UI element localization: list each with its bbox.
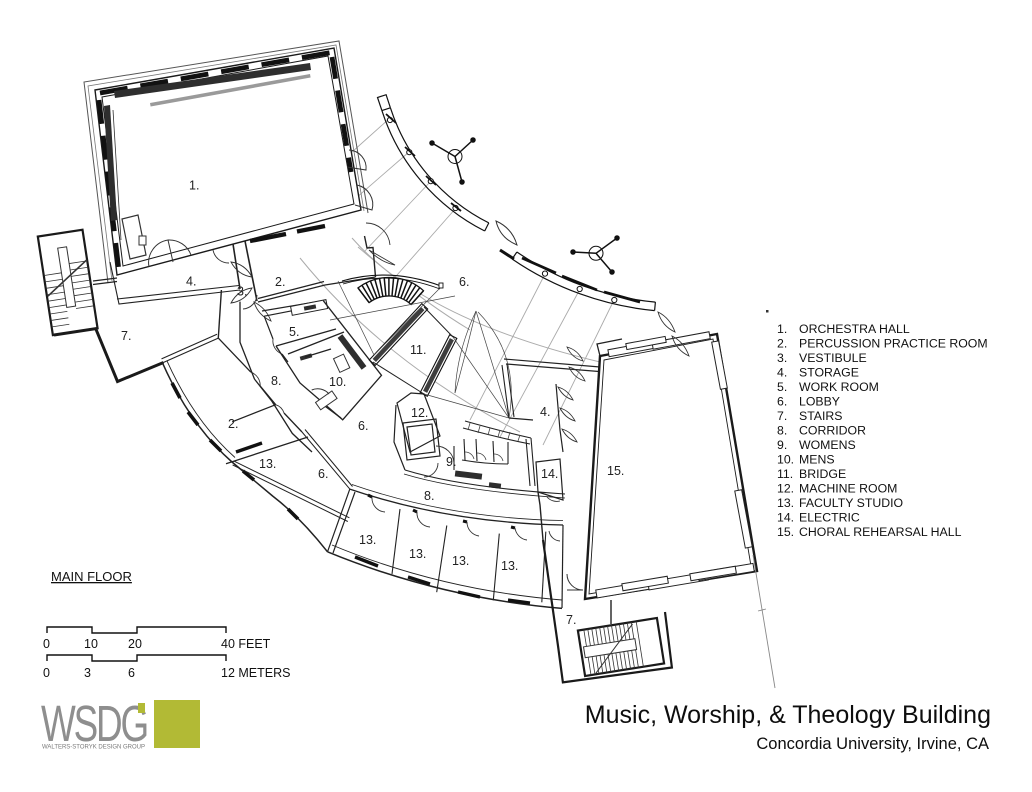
svg-text:6: 6 <box>128 666 135 680</box>
svg-text:ORCHESTRA HALL: ORCHESTRA HALL <box>799 322 910 336</box>
svg-text:13.: 13. <box>452 554 469 568</box>
svg-text:BRIDGE: BRIDGE <box>799 467 846 481</box>
svg-text:MENS: MENS <box>799 453 835 467</box>
svg-text:7.: 7. <box>777 409 787 423</box>
svg-text:1.: 1. <box>777 322 787 336</box>
svg-text:10.: 10. <box>329 375 346 389</box>
svg-text:WORK ROOM: WORK ROOM <box>799 380 879 394</box>
svg-text:4.: 4. <box>540 405 550 419</box>
svg-text:2.: 2. <box>275 275 285 289</box>
svg-text:9.: 9. <box>777 438 787 452</box>
svg-text:0: 0 <box>43 637 50 651</box>
svg-text:WOMENS: WOMENS <box>799 438 856 452</box>
svg-text:9.: 9. <box>446 455 456 469</box>
svg-text:14.: 14. <box>541 467 558 481</box>
svg-text:1.: 1. <box>189 179 199 193</box>
svg-text:2.: 2. <box>228 417 238 431</box>
svg-text:7.: 7. <box>121 329 131 343</box>
svg-text:CHORAL REHEARSAL HALL: CHORAL REHEARSAL HALL <box>799 525 962 539</box>
svg-text:3.: 3. <box>777 351 787 365</box>
svg-text:13.: 13. <box>777 496 794 510</box>
svg-text:MACHINE ROOM: MACHINE ROOM <box>799 482 897 496</box>
svg-text:4.: 4. <box>186 275 196 289</box>
svg-text:15.: 15. <box>607 464 624 478</box>
svg-text:8.: 8. <box>777 424 787 438</box>
svg-text:11.: 11. <box>777 467 793 481</box>
svg-text:6.: 6. <box>459 275 469 289</box>
svg-text:10: 10 <box>84 637 98 651</box>
svg-text:CORRIDOR: CORRIDOR <box>799 424 866 438</box>
svg-text:LOBBY: LOBBY <box>799 395 840 409</box>
svg-text:0: 0 <box>43 666 50 680</box>
svg-text:VESTIBULE: VESTIBULE <box>799 351 867 365</box>
svg-text:13.: 13. <box>501 559 518 573</box>
svg-text:12.: 12. <box>777 482 794 496</box>
svg-text:13.: 13. <box>409 547 426 561</box>
svg-text:8.: 8. <box>271 374 281 388</box>
svg-text:STORAGE: STORAGE <box>799 366 859 380</box>
svg-text:2.: 2. <box>777 337 787 351</box>
svg-text:Music, Worship, & Theology Bui: Music, Worship, & Theology Building <box>585 701 991 729</box>
svg-text:15.: 15. <box>777 525 794 539</box>
svg-text:5.: 5. <box>289 325 299 339</box>
svg-text:3: 3 <box>84 666 91 680</box>
svg-text:PERCUSSION PRACTICE ROOM: PERCUSSION PRACTICE ROOM <box>799 337 988 351</box>
svg-text:7.: 7. <box>566 613 576 627</box>
svg-text:4.: 4. <box>777 366 787 380</box>
svg-text:20: 20 <box>128 637 142 651</box>
svg-text:8.: 8. <box>424 489 434 503</box>
svg-text:WALTERS-STORYK DESIGN GROUP: WALTERS-STORYK DESIGN GROUP <box>42 744 145 751</box>
svg-text:3.: 3. <box>237 285 247 299</box>
svg-text:6.: 6. <box>777 395 787 409</box>
svg-text:6.: 6. <box>318 467 328 481</box>
svg-text:5.: 5. <box>777 380 787 394</box>
svg-text:40 FEET: 40 FEET <box>221 637 271 651</box>
svg-text:FACULTY STUDIO: FACULTY STUDIO <box>799 496 903 510</box>
svg-text:13.: 13. <box>359 533 376 547</box>
svg-text:ELECTRIC: ELECTRIC <box>799 511 860 525</box>
svg-text:12.: 12. <box>411 406 428 420</box>
svg-text:12 METERS: 12 METERS <box>221 666 290 680</box>
svg-text:14.: 14. <box>777 511 794 525</box>
svg-text:Concordia University, Irvine,: Concordia University, Irvine, CA <box>756 735 989 753</box>
svg-text:11.: 11. <box>410 343 426 357</box>
svg-text:13.: 13. <box>259 457 276 471</box>
svg-text:STAIRS: STAIRS <box>799 409 843 423</box>
svg-text:10.: 10. <box>777 453 794 467</box>
svg-text:MAIN FLOOR: MAIN FLOOR <box>51 569 132 584</box>
svg-text:6.: 6. <box>358 419 368 433</box>
